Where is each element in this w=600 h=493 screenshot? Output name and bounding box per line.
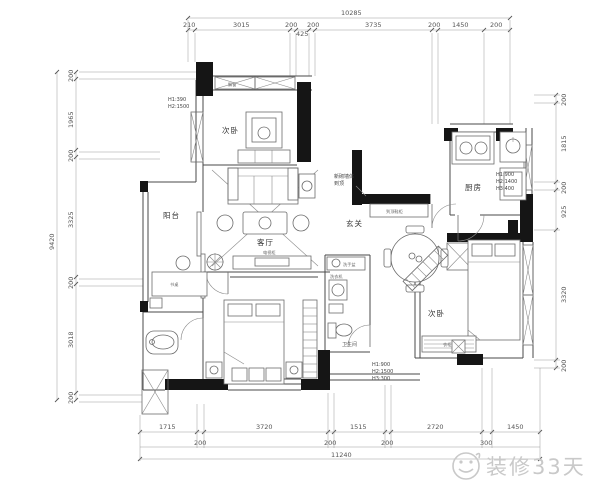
entry-door [432, 204, 456, 228]
bed2 [468, 240, 520, 340]
bedroom2-label: 次卧 [428, 308, 445, 318]
bedroom1-label: 次卧 [222, 125, 239, 135]
dim-bottom-main-1: 3720 [256, 423, 273, 431]
dim-top-8: 200 [490, 21, 502, 29]
dimension-right: 200 1815 200 925 3320 200 [534, 93, 568, 372]
washing-machine: 洗衣机 [329, 273, 347, 300]
left-bathroom [146, 331, 178, 354]
dim-left-4: 200 [67, 277, 75, 289]
stove [452, 132, 494, 164]
side-table-lamp [299, 174, 315, 198]
kitchen-note-1: H1:900 [496, 172, 514, 178]
bay-window-bedroom1 [215, 77, 295, 89]
watermark-logo-icon [453, 453, 480, 479]
room-living: 客厅 电视柜 [206, 168, 318, 271]
desk: 书桌 [152, 256, 207, 296]
bath-shelf [329, 304, 343, 313]
dim-left-3: 3325 [67, 211, 75, 228]
cabinet-appliance [246, 112, 282, 148]
bedroom2-note-1: H1:900 [372, 362, 390, 368]
dim-top-6: 200 [428, 21, 440, 29]
dim-right-2: 200 [560, 182, 568, 194]
room-bathroom: 洗手盆 洗衣机 卫生间 [327, 257, 365, 348]
bay-window-master [142, 370, 168, 414]
master-door [206, 272, 228, 294]
left-bath-door [181, 318, 203, 340]
dim-top-3: 425 [296, 30, 308, 38]
entry-note-1: 新砌墙体 [334, 173, 354, 180]
room-bedroom1: 次卧 H1:390 H2:1500 [168, 97, 290, 163]
dim-top-4: 200 [307, 21, 319, 29]
chair-west [384, 249, 391, 267]
dim-bottom-small-2: 200 [381, 439, 393, 447]
dim-bottom-small-1: 200 [324, 439, 336, 447]
room-master: 主卧 [206, 300, 317, 384]
pouf-right [293, 215, 309, 231]
nightstand-left [206, 362, 222, 378]
basin-label: 洗手盆 [343, 261, 356, 268]
kitchen-label: 厨房 [465, 182, 482, 192]
floorplan-page: 10285 210 3015 200 425 200 3735 200 1450… [0, 0, 600, 493]
tv-cabinet: 电视柜 [233, 249, 311, 269]
floorplan-drawing: 10285 210 3015 200 425 200 3735 200 1450… [0, 0, 600, 493]
wardrobe-bottom: 衣柜 [422, 336, 476, 352]
dim-bottom-total: 11240 [331, 451, 352, 459]
dim-top-1: 3015 [233, 21, 250, 29]
washer-label: 洗衣机 [330, 273, 343, 280]
dim-left-0: 200 [67, 70, 75, 82]
shoe-cabinet-label: 到顶鞋柜 [386, 208, 403, 215]
dim-top-2: 200 [285, 21, 297, 29]
watermark-brand: 装修33天 [486, 455, 586, 479]
chair-south [406, 285, 424, 292]
dim-left-2: 200 [67, 150, 75, 162]
kitchen-note-3: H3:400 [496, 186, 514, 192]
dim-bottom-main-0: 1715 [159, 423, 176, 431]
bedroom2-note-3: H3:300 [372, 376, 390, 382]
dim-top-7: 1450 [452, 21, 469, 29]
dim-right-5: 200 [560, 360, 568, 372]
dim-left-6: 200 [67, 392, 75, 404]
pouf-left [217, 215, 233, 231]
window-note-2: H2:1500 [168, 104, 189, 110]
desk-chair [176, 256, 190, 270]
bedroom2-note-2: H2:1500 [372, 369, 393, 375]
plant [206, 253, 224, 271]
dim-bottom-main-3: 2720 [427, 423, 444, 431]
entry-label: 玄关 [346, 218, 363, 228]
dining-table [391, 234, 439, 282]
entry-note-2: 到顶 [334, 180, 344, 187]
dim-right-4: 3320 [560, 286, 568, 303]
balcony-shelf [150, 298, 162, 308]
shoe-cabinet: 到顶鞋柜 [370, 204, 428, 217]
wardrobe-label: 衣柜 [443, 341, 451, 348]
dim-top-0: 210 [183, 21, 195, 29]
dim-left-5: 3018 [67, 331, 75, 348]
watermark: 装修33天 [453, 453, 586, 479]
dim-right-0: 200 [560, 94, 568, 106]
dim-right-1: 1815 [560, 135, 568, 152]
desk-label: 书桌 [170, 281, 179, 288]
balcony-label: 阳台 [163, 210, 180, 220]
bay-window-bedroom2 [523, 245, 533, 345]
bay-window-label: 飘窗 [228, 81, 236, 88]
master-wardrobe-strip [303, 300, 317, 378]
dim-bottom-main-4: 1450 [507, 423, 524, 431]
dim-left-1: 1965 [67, 111, 75, 128]
bathroom-label: 卫生间 [342, 341, 357, 348]
dim-bottom-main-2: 1515 [350, 423, 367, 431]
nightstand-bedroom2 [452, 340, 465, 353]
cabinet-row [238, 150, 290, 163]
dining-area [384, 226, 448, 292]
dim-right-3: 925 [560, 206, 568, 218]
window-note-1: H1:390 [168, 97, 186, 103]
bathtub [146, 331, 178, 354]
kitchen-sink [500, 132, 526, 162]
coffee-table [243, 212, 287, 234]
master-bed [224, 300, 284, 384]
living-label: 客厅 [257, 237, 274, 247]
dim-top-5: 3735 [365, 21, 382, 29]
dimension-top: 10285 210 3015 200 425 200 3735 200 1450… [183, 9, 512, 124]
dim-left-total: 9420 [48, 233, 56, 250]
tv-cabinet-label: 电视柜 [263, 249, 276, 256]
dim-top-total: 10285 [341, 9, 362, 17]
room-kitchen: 厨房 H1:900 H2:1400 H3:400 [452, 132, 526, 200]
toilet [328, 323, 352, 338]
basin-cabinet: 洗手盆 [327, 257, 365, 270]
kitchen-note-2: H2:1400 [496, 179, 517, 185]
dim-bottom-small-0: 200 [194, 439, 206, 447]
chair-north [406, 226, 424, 233]
sofa [228, 168, 298, 204]
nightstand-right [286, 362, 302, 378]
dimension-left: 9420 200 1965 200 3325 200 3018 200 [48, 70, 196, 404]
bay-window-left [191, 112, 203, 162]
